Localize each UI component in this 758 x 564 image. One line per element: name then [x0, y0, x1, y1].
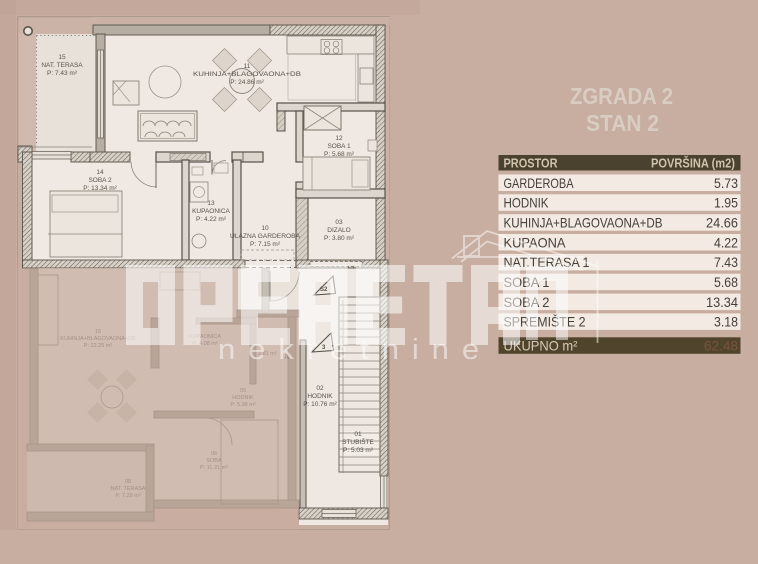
svg-text:5.68: 5.68: [714, 274, 738, 290]
svg-text:SOBA 1: SOBA 1: [327, 143, 351, 150]
svg-text:01: 01: [354, 431, 362, 438]
svg-text:ZGRADA 2: ZGRADA 2: [570, 83, 673, 109]
svg-text:3.18: 3.18: [714, 314, 738, 330]
svg-text:03: 03: [335, 219, 343, 226]
svg-text:10: 10: [261, 225, 269, 232]
svg-text:STUBIŠTE: STUBIŠTE: [342, 437, 374, 446]
svg-text:24.66: 24.66: [706, 215, 738, 231]
svg-text:ULAZNA GARDEROBA: ULAZNA GARDEROBA: [230, 233, 301, 240]
svg-text:KUHINJA+BLAGOVAONA+DB: KUHINJA+BLAGOVAONA+DB: [193, 71, 301, 78]
svg-text:KUPAONA: KUPAONA: [504, 234, 567, 250]
svg-text:HODNIK: HODNIK: [504, 195, 550, 211]
svg-text:P: 10.76 m²: P: 10.76 m²: [303, 401, 337, 408]
svg-text:S2: S2: [320, 287, 328, 293]
svg-text:1.95: 1.95: [714, 195, 738, 211]
svg-text:62.48: 62.48: [704, 338, 738, 354]
svg-text:P: 5.03 m²: P: 5.03 m²: [343, 447, 374, 454]
svg-text:P: 7.43 m²: P: 7.43 m²: [47, 70, 78, 77]
svg-text:02: 02: [316, 385, 324, 392]
svg-text:nekretnine: nekretnine: [218, 334, 492, 366]
svg-text:4.22: 4.22: [714, 234, 738, 250]
svg-text:13: 13: [207, 200, 215, 207]
svg-text:13.34: 13.34: [706, 294, 738, 310]
svg-text:PROSTOR: PROSTOR: [504, 156, 559, 171]
svg-text:SOBA 2: SOBA 2: [88, 177, 112, 184]
svg-text:HODNIK: HODNIK: [307, 393, 333, 400]
svg-text:5.73: 5.73: [714, 175, 738, 191]
svg-text:7.43: 7.43: [714, 254, 738, 270]
svg-text:STAN 2: STAN 2: [586, 110, 659, 136]
svg-text:11: 11: [244, 63, 251, 70]
svg-text:P: 3.80 m²: P: 3.80 m²: [324, 235, 355, 242]
svg-text:P: 5.68 m²: P: 5.68 m²: [324, 151, 355, 158]
svg-text:15: 15: [58, 54, 66, 61]
svg-text:KUHINJA+BLAGOVAONA+DB: KUHINJA+BLAGOVAONA+DB: [504, 215, 663, 231]
svg-text:12: 12: [335, 135, 343, 142]
svg-text:NAT. TERASA: NAT. TERASA: [41, 62, 83, 69]
svg-text:14: 14: [96, 169, 104, 176]
svg-text:P: 24.86 m²: P: 24.86 m²: [230, 79, 264, 86]
svg-text:POVRŠINA (m2): POVRŠINA (m2): [651, 156, 735, 171]
svg-text:P: 4.22 m²: P: 4.22 m²: [196, 216, 227, 223]
svg-text:P: 13.34 m²: P: 13.34 m²: [83, 185, 117, 192]
svg-text:GARDEROBA: GARDEROBA: [504, 175, 575, 191]
svg-text:KUPAONICA: KUPAONICA: [192, 208, 230, 215]
svg-text:P: 7.15 m²: P: 7.15 m²: [250, 241, 281, 248]
svg-text:DIZALO: DIZALO: [327, 227, 350, 234]
